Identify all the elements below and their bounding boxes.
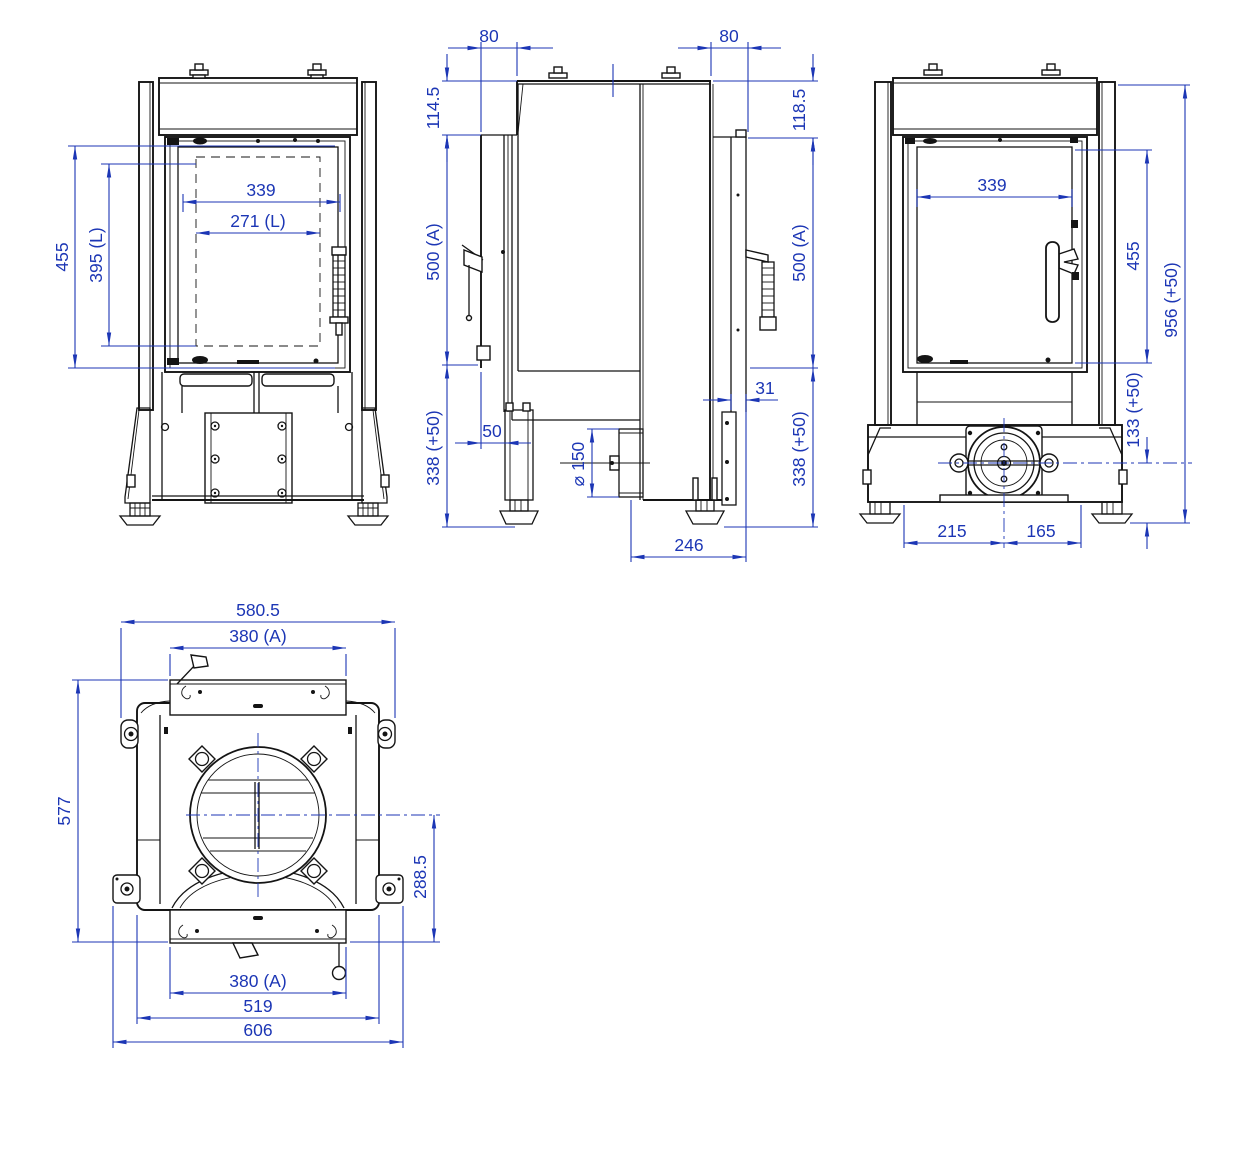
dim-front-glass-width: 339 xyxy=(246,180,275,200)
dim-top-frame-width-front: 380 (A) xyxy=(229,626,286,646)
dim-side-top-inset-rear: 80 xyxy=(719,26,739,46)
dim-side-top-inset-front: 80 xyxy=(479,26,499,46)
dim-side-base-front: 338 (+50) xyxy=(423,410,443,485)
latch-icon xyxy=(233,943,258,958)
dim-side-base-rear: 338 (+50) xyxy=(789,411,809,486)
adjustable-foot-icon xyxy=(120,503,388,525)
handle-spring-icon xyxy=(746,250,776,330)
front-view-linework xyxy=(120,64,389,525)
rear-view-linework xyxy=(860,64,1192,548)
dim-top-width: 580.5 xyxy=(236,600,280,620)
dim-rear-intake-left: 215 xyxy=(937,521,966,541)
top-view-linework xyxy=(113,655,440,980)
front-view: 455 395 (L) 339 271 (L) xyxy=(52,64,389,525)
dim-side-flue-diameter: ⌀ 150 xyxy=(568,441,588,486)
door-spring-icon xyxy=(330,247,348,335)
top-rear-plate xyxy=(170,910,346,980)
dim-top-body-width: 519 xyxy=(243,996,272,1016)
side-view: 80 80 114.5 500 (A) 338 (+50) 118.5 500 … xyxy=(423,26,818,562)
dim-rear-door-height: 455 xyxy=(1123,241,1143,270)
dim-side-hood-rear: 118.5 xyxy=(789,89,809,132)
dim-front-light-height: 395 (L) xyxy=(86,227,106,282)
side-view-linework xyxy=(462,64,776,524)
dim-rear-glass-width: 339 xyxy=(977,175,1006,195)
rear-feet xyxy=(860,502,1132,523)
side-view-dimensions: 80 80 114.5 500 (A) 338 (+50) 118.5 500 … xyxy=(423,26,818,562)
dim-rear-total-height: 956 (+50) xyxy=(1161,262,1181,337)
rear-view: 339 455 133 (+50) 956 (+50) 215 165 xyxy=(860,64,1192,549)
damper-lever-icon xyxy=(462,245,483,321)
dim-top-flue-center: 288.5 xyxy=(410,855,430,899)
dim-top-frame-width-rear: 380 (A) xyxy=(229,971,286,991)
handle-ball-icon xyxy=(333,967,346,980)
front-base xyxy=(120,372,389,525)
side-rear-leg xyxy=(686,478,724,524)
top-front-plate xyxy=(141,680,375,715)
dim-front-light-width: 271 (L) xyxy=(230,211,285,231)
dim-rear-intake-right: 165 xyxy=(1026,521,1055,541)
dim-top-overall-width: 606 xyxy=(243,1020,272,1040)
dim-side-rear-panel: 31 xyxy=(755,378,774,398)
side-front-leg xyxy=(500,403,538,524)
dim-side-base-depth: 246 xyxy=(674,535,703,555)
top-view: 580.5 380 (A) 577 288.5 380 (A) 519 606 xyxy=(54,600,440,1048)
door-handle-icon xyxy=(1046,220,1079,322)
flue-opening xyxy=(186,733,440,898)
dim-side-body-front: 500 (A) xyxy=(423,223,443,280)
front-hood xyxy=(159,78,357,135)
technical-drawing-canvas: 455 395 (L) 339 271 (L) xyxy=(0,0,1241,1149)
dim-side-body-rear: 500 (A) xyxy=(789,224,809,281)
dim-rear-intake-height: 133 (+50) xyxy=(1123,372,1143,447)
front-door xyxy=(165,137,350,372)
dim-front-frame-height: 455 xyxy=(52,242,72,271)
dim-top-depth: 577 xyxy=(54,796,74,825)
drawing-svg: 455 395 (L) 339 271 (L) xyxy=(0,0,1241,1149)
dim-side-hood-front: 114.5 xyxy=(423,87,443,130)
dim-side-leg-offset: 50 xyxy=(482,421,502,441)
lifting-bolt-icon xyxy=(190,64,326,78)
